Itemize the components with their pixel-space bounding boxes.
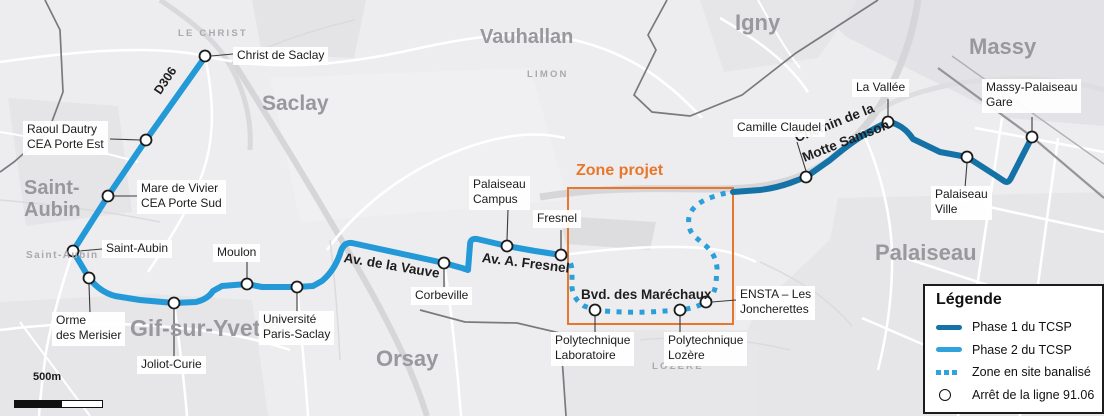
scale-label: 500m — [33, 371, 61, 383]
phase1-line-swatch — [936, 325, 963, 330]
dotted-line-swatch — [936, 370, 963, 375]
stop-marker-polytechnique-laboratoire — [590, 305, 601, 316]
zone-projet-label: Zone projet — [576, 162, 663, 180]
stop-marker-polytechnique-lozere — [675, 305, 686, 316]
place-label-saint-aubin: Saint- Aubin — [24, 177, 81, 222]
street-label-bvd-des-marechaux: Bvd. des Maréchaux — [581, 287, 712, 302]
stop-label-orme-des-merisier: Ormedes Merisier — [52, 312, 125, 346]
stop-marker-camille-claudel — [801, 172, 812, 183]
stop-label-polytechnique-laboratoire: PolytechniqueLaboratoire — [551, 332, 634, 366]
stop-label-camille-claudel: Camille Claudel — [733, 119, 825, 137]
stop-label-christ-de-saclay: Christ de Saclay — [233, 47, 328, 65]
place-label-le-christ: LE CHRIST — [178, 28, 248, 39]
stop-label-palaiseau-ville: PalaiseauVille — [931, 186, 992, 220]
tcsp-route-map: LE CHRIST Saclay Saint- Aubin Saint-Aubi… — [0, 0, 1104, 416]
stop-label-universite-paris-saclay: UniversitéParis-Saclay — [259, 311, 334, 345]
legend-item-phase2: Phase 2 du TCSP — [936, 339, 1102, 362]
stop-label-la-vallee: La Vallée — [852, 79, 909, 97]
place-label-saclay: Saclay — [262, 92, 329, 116]
stop-marker-joliot-curie — [169, 298, 180, 309]
legend-title: Légende — [936, 291, 1102, 309]
place-label-massy: Massy — [969, 35, 1036, 60]
stop-marker-orme-des-merisier — [84, 273, 95, 284]
stop-label-fresnel: Fresnel — [533, 210, 581, 228]
place-label-palaiseau: Palaiseau — [875, 241, 977, 266]
scale-bar — [14, 400, 103, 408]
stop-marker-raoul-dautry — [141, 135, 152, 146]
stop-label-massy-palaiseau-gare: Massy-PalaiseauGare — [982, 79, 1081, 113]
stop-marker-palaiseau-campus — [502, 241, 513, 252]
stop-marker-christ-de-saclay — [200, 51, 211, 62]
place-label-vauhallan: Vauhallan — [480, 26, 573, 48]
place-label-orsay: Orsay — [376, 347, 438, 372]
stop-label-ensta-joncherettes: ENSTA – LesJoncherettes — [736, 286, 815, 320]
stop-label-polytechnique-lozere: PolytechniqueLozère — [664, 332, 747, 366]
stop-marker-mare-de-vivier — [103, 191, 114, 202]
legend-item-phase1: Phase 1 du TCSP — [936, 316, 1102, 339]
stop-label-corbeville: Corbeville — [411, 287, 472, 305]
place-label-igny: Igny — [735, 11, 780, 36]
stop-circle-swatch — [936, 389, 963, 401]
stop-label-moulon: Moulon — [213, 244, 260, 262]
place-label-limon: LIMON — [527, 69, 569, 80]
stop-label-palaiseau-campus: PalaiseauCampus — [469, 176, 530, 210]
stop-label-mare-de-vivier: Mare de VivierCEA Porte Sud — [137, 180, 226, 214]
stop-label-raoul-dautry: Raoul DautryCEA Porte Est — [23, 121, 108, 155]
stop-marker-moulon — [242, 279, 253, 290]
legend-item-zone-banalise: Zone en site banalisé — [936, 361, 1102, 384]
stop-label-saint-aubin: Saint-Aubin — [102, 240, 172, 258]
stop-marker-massy-palaiseau-gare — [1027, 132, 1038, 143]
phase2-line-swatch — [936, 347, 963, 352]
stop-marker-palaiseau-ville — [962, 152, 973, 163]
legend-panel: Légende Phase 1 du TCSP Phase 2 du TCSP … — [923, 284, 1104, 414]
stop-label-joliot-curie: Joliot-Curie — [137, 356, 206, 374]
legend-item-stop: Arrêt de la ligne 91.06 — [936, 384, 1102, 407]
place-label-saint-aubin-small: Saint-Aubin — [26, 250, 99, 261]
stop-marker-universite-paris-saclay — [292, 282, 303, 293]
